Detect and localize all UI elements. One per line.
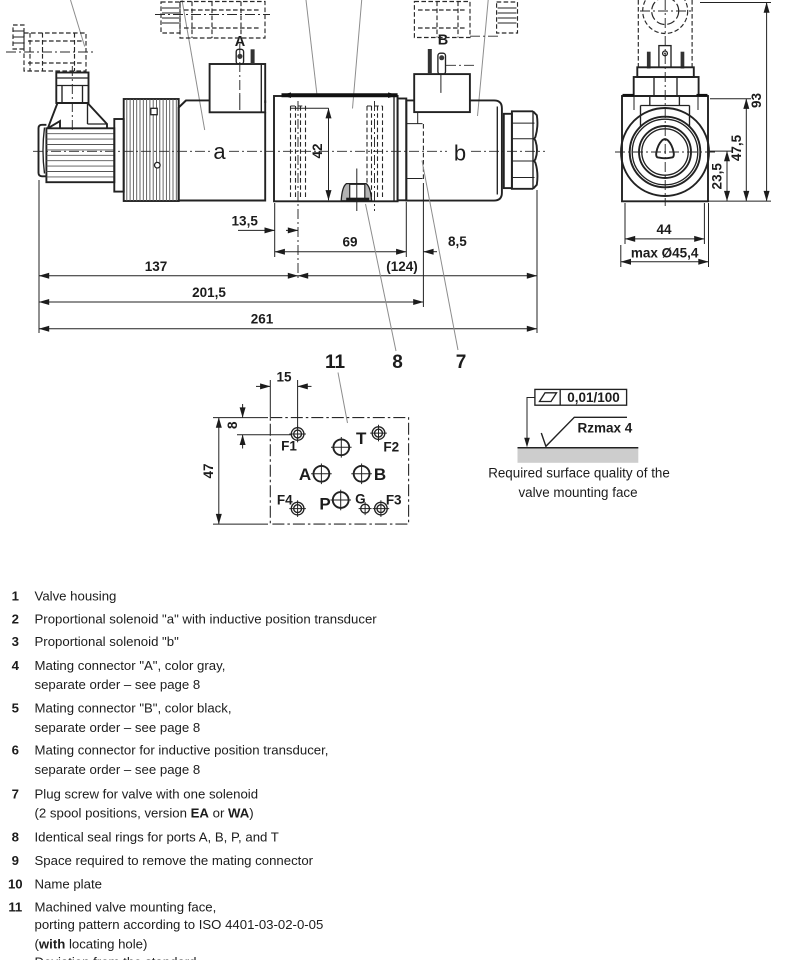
svg-text:separate order – see page 8: separate order – see page 8	[35, 677, 201, 692]
svg-text:0,01/100: 0,01/100	[567, 390, 620, 405]
svg-text:93: 93	[749, 93, 764, 109]
svg-text:47: 47	[201, 463, 216, 478]
svg-text:3: 3	[12, 634, 19, 649]
svg-text:11: 11	[325, 352, 346, 373]
svg-text:Mating connector "A", color gr: Mating connector "A", color gray,	[35, 658, 226, 673]
svg-text:B: B	[374, 465, 386, 484]
svg-text:Rzmax 4: Rzmax 4	[578, 420, 633, 435]
svg-text:F2: F2	[383, 440, 399, 455]
svg-text:a: a	[213, 139, 226, 164]
svg-text:Plug screw for valve with one: Plug screw for valve with one solenoid	[35, 786, 259, 801]
svg-text:(with locating hole): (with locating hole)	[35, 937, 148, 952]
svg-text:69: 69	[342, 235, 357, 250]
svg-text:9: 9	[12, 853, 19, 868]
svg-text:8: 8	[225, 421, 240, 429]
svg-text:137: 137	[145, 259, 168, 274]
svg-text:8,5: 8,5	[448, 234, 467, 249]
svg-text:F3: F3	[386, 493, 402, 508]
svg-text:T: T	[356, 429, 367, 448]
svg-text:Valve housing: Valve housing	[35, 588, 117, 603]
svg-text:separate order – see page 8: separate order – see page 8	[35, 720, 201, 735]
svg-text:B: B	[438, 33, 448, 49]
svg-text:8: 8	[12, 830, 19, 845]
svg-text:10: 10	[8, 877, 23, 892]
svg-text:15: 15	[276, 369, 292, 384]
svg-text:Mating connector "B", color bl: Mating connector "B", color black,	[35, 701, 232, 716]
svg-text:Name plate: Name plate	[35, 877, 102, 892]
svg-text:F1: F1	[281, 439, 297, 454]
svg-text:Required surface quality of th: Required surface quality of the	[488, 465, 670, 480]
svg-text:Proportional solenoid "b": Proportional solenoid "b"	[35, 634, 180, 649]
svg-text:4: 4	[12, 658, 20, 673]
svg-text:max Ø45,4: max Ø45,4	[631, 245, 699, 260]
svg-text:1: 1	[12, 588, 19, 603]
svg-text:47,5: 47,5	[729, 134, 744, 161]
svg-text:A: A	[235, 34, 246, 50]
svg-text:Deviation from the standard: Deviation from the standard	[35, 954, 197, 960]
svg-text:23,5: 23,5	[709, 163, 724, 190]
svg-text:201,5: 201,5	[192, 285, 226, 300]
svg-text:G: G	[355, 492, 366, 507]
svg-text:(124): (124)	[386, 259, 418, 274]
svg-text:7: 7	[456, 352, 467, 373]
svg-text:A: A	[299, 465, 311, 484]
svg-text:Mating connector for inductive: Mating connector for inductive position …	[35, 743, 329, 758]
svg-text:valve mounting face: valve mounting face	[518, 485, 637, 500]
svg-text:Space required to remove the m: Space required to remove the mating conn…	[35, 853, 314, 868]
svg-text:F4: F4	[277, 493, 293, 508]
svg-text:separate order – see page 8: separate order – see page 8	[35, 762, 201, 777]
svg-text:5: 5	[12, 701, 19, 716]
svg-text:b: b	[454, 141, 466, 166]
svg-text:261: 261	[251, 312, 274, 327]
svg-text:2: 2	[12, 611, 19, 626]
svg-text:7: 7	[12, 786, 19, 801]
svg-text:Machined valve mounting face,: Machined valve mounting face,	[35, 900, 217, 915]
svg-text:porting pattern according to I: porting pattern according to ISO 4401-03…	[35, 917, 324, 932]
svg-text:(2 spool positions, version EA: (2 spool positions, version EA or WA)	[35, 806, 254, 821]
svg-text:Identical seal rings for ports: Identical seal rings for ports A, B, P, …	[35, 830, 279, 845]
svg-text:P: P	[319, 495, 330, 514]
svg-text:8: 8	[392, 352, 403, 373]
svg-text:13,5: 13,5	[232, 213, 259, 228]
svg-text:44: 44	[656, 222, 672, 237]
svg-text:11: 11	[8, 900, 22, 915]
svg-text:6: 6	[12, 743, 19, 758]
svg-text:Proportional solenoid "a" with: Proportional solenoid "a" with inductive…	[35, 611, 378, 626]
